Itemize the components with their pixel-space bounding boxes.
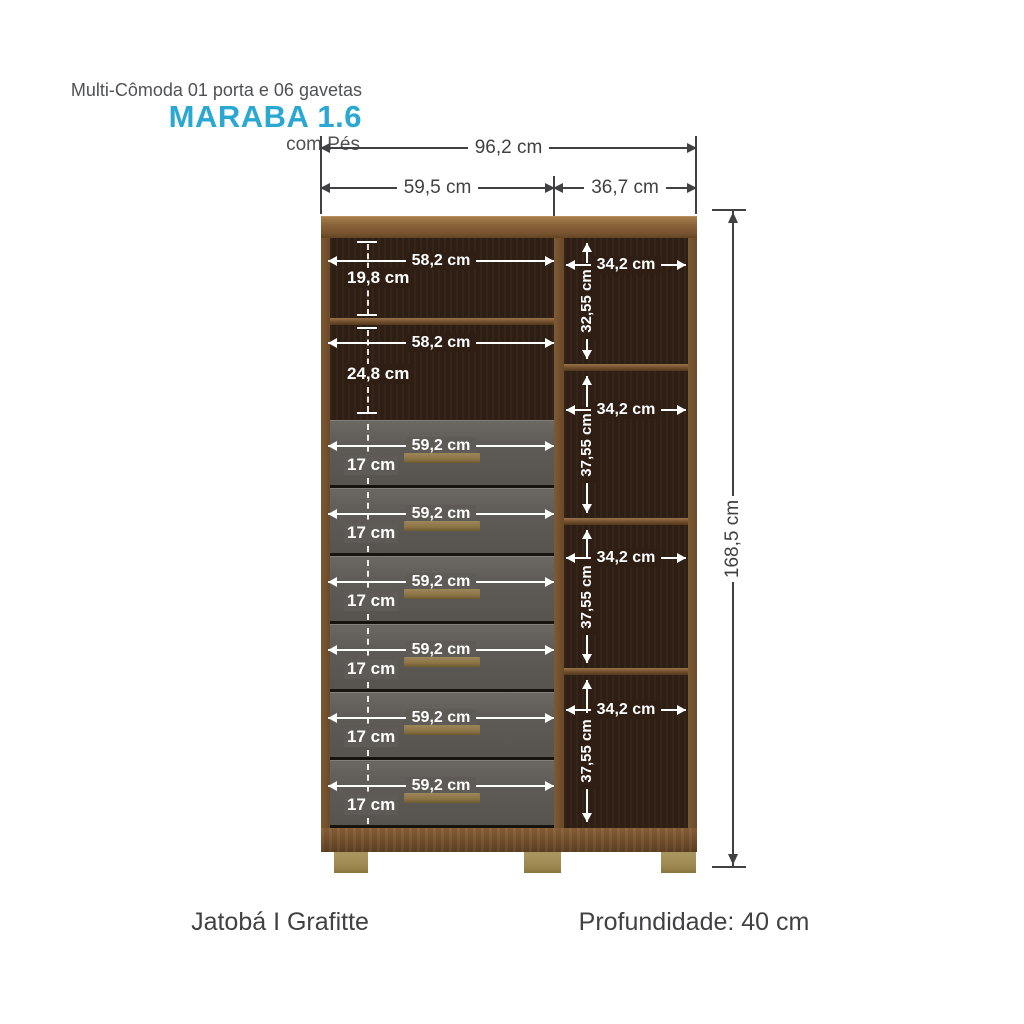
drawer-6-width-dim: 59,2 cm xyxy=(328,779,554,793)
shelf1-tick-top xyxy=(357,241,377,243)
drawer-1-width-dim: 59,2 cm xyxy=(328,439,554,453)
shelf2-tick-bottom xyxy=(357,412,377,414)
product-title-block: Multi-Cômoda 01 porta e 06 gavetas MARAB… xyxy=(60,80,362,156)
shelf2-tick-top xyxy=(357,327,377,329)
drawer-4-handle xyxy=(404,657,480,667)
dimension-left-section-width: 59,5 cm xyxy=(320,181,555,195)
drawer-2-center-line xyxy=(367,492,369,552)
right-shelf-2-width-dim: 34,2 cm xyxy=(566,403,686,417)
height-dimension-arrow-down xyxy=(728,854,738,865)
drawer-3-handle xyxy=(404,589,480,599)
drawer-5-width-dim: 59,2 cm xyxy=(328,711,554,725)
cabinet-top-rail xyxy=(321,216,697,239)
cabinet-foot-left xyxy=(334,852,368,873)
right-shelf-1-width-label: 34,2 cm xyxy=(591,256,662,274)
right-shelf-3-width-label: 34,2 cm xyxy=(591,549,662,567)
drawer-5-height-label: 17 cm xyxy=(344,727,398,747)
drawer-6-center-line xyxy=(367,764,369,824)
height-dimension-arrow-up xyxy=(728,212,738,223)
dimension-left-section-width-label: 59,5 cm xyxy=(397,177,479,199)
shelf1-width-label: 58,2 cm xyxy=(406,252,477,270)
right-shelf-2-height-dim: 37,55 cm xyxy=(577,376,597,513)
shelf2-width-dim: 58,2 cm xyxy=(328,336,554,350)
shelf1-width-dim: 58,2 cm xyxy=(328,254,554,268)
drawer-2-handle xyxy=(404,521,480,531)
cabinet-right-stile xyxy=(688,238,697,828)
right-shelf-divider xyxy=(564,518,688,525)
drawer-1-height-label: 17 cm xyxy=(344,455,398,475)
product-name: MARABA 1.6 xyxy=(60,101,362,134)
drawer-3-width-dim: 59,2 cm xyxy=(328,575,554,589)
product-subtitle: Multi-Cômoda 01 porta e 06 gavetas xyxy=(60,80,362,101)
dimension-total-width-label: 96,2 cm xyxy=(468,137,550,159)
product-diagram: Multi-Cômoda 01 porta e 06 gavetas MARAB… xyxy=(0,0,1024,1024)
right-shelf-1-width-dim: 34,2 cm xyxy=(566,258,686,272)
right-shelf-4-height-label: 37,55 cm xyxy=(578,713,596,789)
drawer-6-handle xyxy=(404,793,480,803)
drawer-1-center-line xyxy=(367,424,369,484)
right-shelf-divider xyxy=(564,668,688,675)
drawer-3-height-label: 17 cm xyxy=(344,591,398,611)
dimension-total-height-label: 168,5 cm xyxy=(721,496,745,582)
drawer-3-center-line xyxy=(367,560,369,620)
cabinet-foot-right xyxy=(661,852,696,873)
depth-label: Profundidade: 40 cm xyxy=(564,908,824,937)
right-shelf-4-width-dim: 34,2 cm xyxy=(566,703,686,717)
height-dimension-bottom-cap xyxy=(712,866,746,868)
right-shelf-divider xyxy=(564,364,688,371)
drawer-4-center-line xyxy=(367,628,369,688)
right-shelf-4-width-label: 34,2 cm xyxy=(591,701,662,719)
shelf1-height-label: 19,8 cm xyxy=(344,268,412,288)
dimension-total-width: 96,2 cm xyxy=(320,141,697,155)
product-variant: com Pés xyxy=(60,134,362,156)
drawer-5-center-line xyxy=(367,696,369,756)
dimension-right-section-width-label: 36,7 cm xyxy=(584,177,666,199)
shelf2-width-label: 58,2 cm xyxy=(406,334,477,352)
cabinet-center-divider xyxy=(554,238,564,828)
drawer-1-handle xyxy=(404,453,480,463)
drawer-5-handle xyxy=(404,725,480,735)
right-shelf-2-width-label: 34,2 cm xyxy=(591,401,662,419)
finish-label: Jatobá I Grafitte xyxy=(150,908,410,937)
drawer-2-height-label: 17 cm xyxy=(344,523,398,543)
drawer-6-height-label: 17 cm xyxy=(344,795,398,815)
drawer-4-height-label: 17 cm xyxy=(344,659,398,679)
cabinet-foot-center xyxy=(524,852,561,873)
drawer-2-width-dim: 59,2 cm xyxy=(328,507,554,521)
dimension-right-section-width: 36,7 cm xyxy=(553,181,697,195)
cabinet-base-rail xyxy=(321,828,697,852)
left-shelf-divider xyxy=(330,318,554,325)
right-shelf-1-height-label: 32,55 cm xyxy=(578,263,596,339)
right-shelf-3-height-label: 37,55 cm xyxy=(578,559,596,635)
shelf1-tick-bottom xyxy=(357,314,377,316)
cabinet-left-stile xyxy=(321,238,330,828)
right-shelf-3-width-dim: 34,2 cm xyxy=(566,551,686,565)
shelf2-height-label: 24,8 cm xyxy=(344,364,412,384)
height-dimension-top-cap xyxy=(712,209,746,211)
drawer-4-width-dim: 59,2 cm xyxy=(328,643,554,657)
